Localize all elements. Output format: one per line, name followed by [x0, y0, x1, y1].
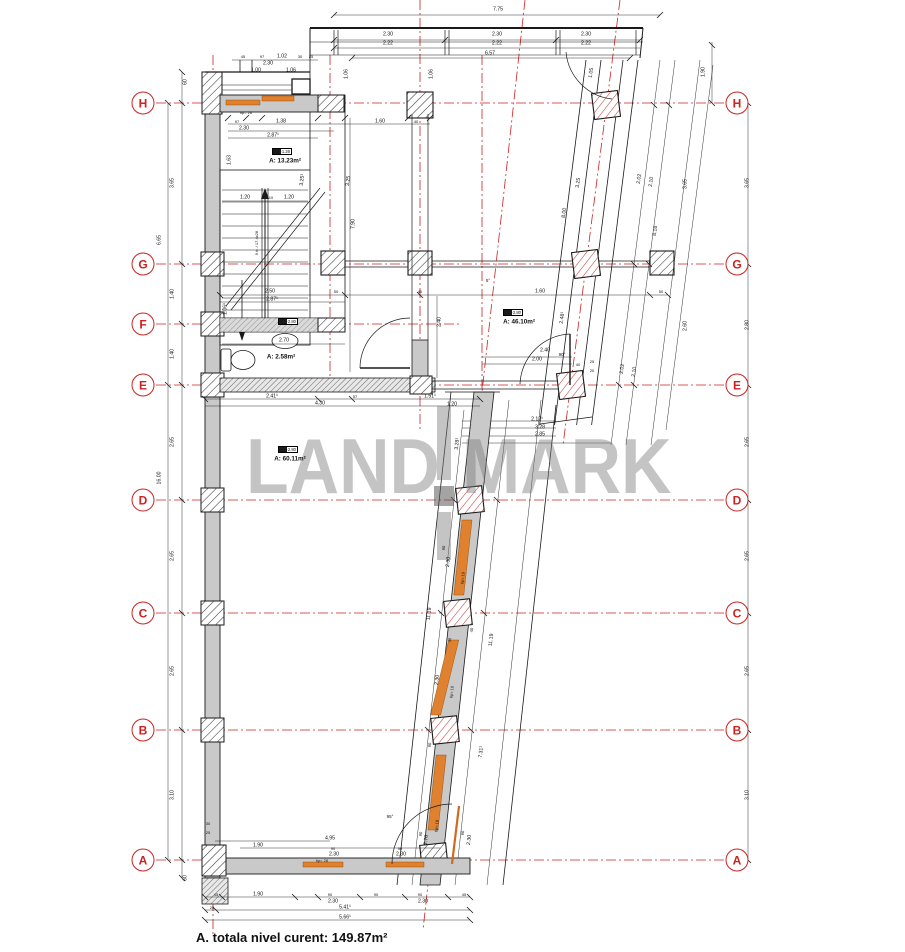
dimension-label: 1.90 — [253, 892, 263, 897]
dimension-label: 40 — [470, 628, 474, 633]
dimension-label: 2.65 — [745, 666, 750, 676]
dimension-label: 7.31¹ — [479, 746, 485, 758]
dimension-label: 2.30 — [581, 32, 591, 37]
room-level-tag: +1.26 — [272, 148, 292, 155]
dimension-label: tip= 26 — [240, 111, 252, 115]
dimension-label: 4.95 — [325, 836, 335, 841]
dimension-label: 2.30 — [435, 675, 441, 686]
dimension-label: 90 — [461, 831, 465, 836]
dimension-label: 1.60 — [375, 119, 385, 124]
dimension-label: 1.60 — [535, 289, 545, 294]
dimension-label: 2.70 — [424, 835, 430, 846]
dimension-label: 11.19 — [427, 607, 433, 620]
dimension-label: 2.65 — [170, 437, 175, 447]
dimension-label: 30 — [298, 55, 302, 59]
dimension-label: 7.75 — [493, 7, 503, 12]
dimension-label: 2.10 — [649, 177, 656, 188]
grid-bubble-left-G: G — [132, 253, 155, 276]
floor-plan-canvas: LAND MARK HGFEDCBAHGEDCBA7.752.302.222.3… — [0, 0, 905, 952]
dimension-label: 4.30 — [315, 401, 325, 406]
room-area-label: A: 46.10m² — [503, 319, 535, 326]
dimension-label: 3.65 — [745, 178, 750, 188]
grid-bubble-left-C: C — [132, 602, 155, 625]
dimension-label: 3.28 — [535, 425, 545, 430]
dimension-label: 45 — [462, 893, 466, 897]
dimension-label: 2.30 — [328, 899, 338, 904]
dimension-label: 90 — [374, 893, 378, 897]
dimension-label: 3.65 — [170, 178, 175, 188]
dimension-label: 20 — [590, 369, 594, 373]
dimension-label: 90 — [328, 893, 332, 897]
room-level-tag: +2.80 — [278, 446, 298, 453]
dimension-label: 2.48¹ — [560, 312, 567, 324]
dimension-label: 90° — [559, 353, 566, 358]
dimension-label: 2.60 — [683, 321, 688, 331]
dimension-label: 95° — [387, 815, 394, 820]
dimension-label: 3.25 — [346, 176, 352, 187]
room-area-label: A: 13.23m² — [269, 158, 301, 165]
dimension-label: 25 — [590, 360, 594, 364]
grid-bubble-left-B: B — [132, 719, 155, 742]
dimension-label: 45 — [214, 893, 218, 897]
dimension-label: 2.02 — [637, 174, 644, 185]
dimension-label: 1.02 — [277, 54, 287, 59]
grid-bubble-left-E: E — [132, 374, 155, 397]
dimension-label: 2.30 — [418, 899, 428, 904]
dimension-label: 3.28¹ — [455, 438, 461, 450]
grid-bubble-right-E: E — [726, 374, 749, 397]
dimension-label: 3.10 — [745, 790, 750, 800]
room-level-tag: +2.80 — [278, 318, 298, 325]
grid-bubble-right-A: A — [726, 849, 749, 872]
dimension-label: 1.06¹ — [223, 303, 228, 315]
dimension-label: 5.66¹ — [339, 915, 351, 920]
dimension-label: 25 — [210, 906, 214, 910]
dimension-label: 2.30 — [467, 835, 473, 846]
dimension-label: tip= 19 — [460, 572, 465, 584]
dimension-label: 90 — [398, 847, 402, 851]
dimension-label: 1.20 — [447, 402, 457, 407]
dimension-label: 2.10 — [632, 367, 639, 378]
dimension-label: 40 — [414, 120, 418, 124]
dimension-label: 2.65 — [170, 551, 175, 561]
dimension-label: 2.30 — [263, 61, 273, 66]
dimension-label: 50 — [659, 290, 663, 294]
dimension-label: 2.40 — [437, 317, 442, 327]
dimension-label: 2.00 — [532, 357, 542, 362]
dimension-label: 40 — [576, 363, 580, 367]
dimension-label: 2.30 — [492, 32, 502, 37]
dimension-label: 6.57 — [485, 51, 495, 56]
dimension-label: 2.80 — [745, 320, 750, 330]
dimension-label: 5.41¹ — [339, 905, 351, 910]
dimension-label: 1.51¹ — [424, 394, 436, 399]
grid-bubble-left-H: H — [132, 92, 155, 115]
dimension-label: 3.10 — [170, 790, 175, 800]
dimension-label: 25 — [309, 55, 313, 59]
grid-bubble-right-G: G — [726, 253, 749, 276]
dimension-label: 1.40 — [170, 289, 175, 299]
dimension-label: 1.06 — [429, 69, 434, 79]
dimension-label: tip= 19 — [449, 686, 454, 698]
dimension-label: 1.05 — [589, 68, 596, 79]
dimension-label: 5° — [486, 279, 490, 284]
dimension-label: 10 — [269, 196, 273, 200]
room-area-label: A: 60.11m² — [274, 456, 306, 463]
dimension-label: 2.12¹ — [531, 417, 543, 422]
annotation-overlay: HGFEDCBAHGEDCBA7.752.302.222.302.222.302… — [0, 0, 905, 952]
dimension-label: 8.18 — [653, 226, 660, 237]
dimension-label: 90 — [428, 743, 432, 748]
dimension-label: 1.20 — [284, 195, 294, 200]
dimension-label: 2.22 — [492, 41, 502, 46]
dimension-label: 60 — [183, 79, 188, 85]
dimension-label: 2.50 — [265, 289, 275, 294]
dimension-label: tip= 18 — [434, 820, 439, 832]
dimension-label: 2.30 — [383, 32, 393, 37]
dimension-label: 1.06 — [344, 69, 349, 79]
dimension-label: 1.90 — [701, 67, 706, 77]
dimension-label: 1.00 — [251, 68, 261, 73]
dimension-label: 45 — [448, 638, 452, 643]
grid-bubble-left-D: D — [132, 489, 155, 512]
dimension-label: 2.30 — [239, 126, 249, 131]
dimension-label: 45 — [241, 55, 245, 59]
dimension-label: 30 — [206, 822, 210, 826]
dimension-label: 2.87¹ — [267, 133, 279, 138]
room-area-label: A: 2.58m² — [267, 354, 295, 361]
dimension-label: 2.02 — [620, 364, 627, 375]
grid-bubble-left-A: A — [132, 849, 155, 872]
dimension-label: 6.65 — [157, 235, 162, 245]
grid-bubble-right-D: D — [726, 489, 749, 512]
dimension-label: 7.90 — [351, 219, 356, 229]
dimension-label: 16.00 — [157, 472, 162, 485]
dimension-label: 2.30 — [446, 557, 452, 568]
dimension-label: 2.65 — [170, 666, 175, 676]
dimension-label: 8.00 — [562, 208, 569, 219]
dimension-label: 2.65 — [745, 437, 750, 447]
total-area-note: A. totala nivel curent: 149.87m² — [196, 930, 387, 945]
dimension-label: 25 — [206, 831, 210, 835]
dimension-label: 3.25 — [576, 178, 583, 189]
dimension-label: 2.22 — [383, 41, 393, 46]
dimension-label: 50 — [334, 290, 338, 294]
grid-bubble-left-F: F — [132, 313, 155, 336]
grid-bubble-right-C: C — [726, 602, 749, 625]
dimension-label: 60 — [183, 875, 188, 881]
dimension-label: 1.90 — [253, 843, 263, 848]
dimension-label: 2.30 — [396, 852, 406, 857]
dimension-label: 2.40 — [540, 348, 550, 353]
grid-bubble-right-B: B — [726, 719, 749, 742]
dimension-label: 2.22 — [581, 41, 591, 46]
dimension-label: 90 — [442, 546, 446, 551]
dimension-label: 2.70 — [279, 338, 289, 343]
dimension-label: 11.19 — [489, 633, 495, 646]
dimension-label: 97 — [235, 120, 239, 124]
dimension-label: 1.06 — [286, 68, 296, 73]
dimension-label: 57 — [353, 395, 357, 399]
dimension-label: 2.85 — [535, 432, 545, 437]
dimension-label: 40 — [418, 290, 422, 294]
dimension-label: 9 tr. / 17.4x28 — [255, 231, 259, 255]
dimension-label: 2.41¹ — [266, 394, 278, 399]
dimension-label: 1.63 — [227, 155, 232, 165]
dimension-label: 90 — [419, 832, 423, 837]
dimension-label: 3.65 — [683, 179, 688, 189]
room-level-tag: +2.80 — [503, 309, 523, 316]
dimension-label: 3.25¹ — [300, 174, 306, 186]
dimension-label: 1.40 — [170, 349, 175, 359]
dimension-label: 97 — [260, 55, 264, 59]
dimension-label: 1.20 — [240, 195, 250, 200]
dimension-label: 1.38 — [276, 119, 286, 124]
dimension-label: 2.30 — [329, 852, 339, 857]
dimension-label: 90 — [418, 893, 422, 897]
dimension-label: 90 — [331, 847, 335, 851]
dimension-label: tip= 28 — [316, 859, 328, 863]
grid-bubble-right-H: H — [726, 92, 749, 115]
dimension-label: 2.65 — [745, 551, 750, 561]
dimension-label: 2.87¹ — [266, 297, 278, 302]
